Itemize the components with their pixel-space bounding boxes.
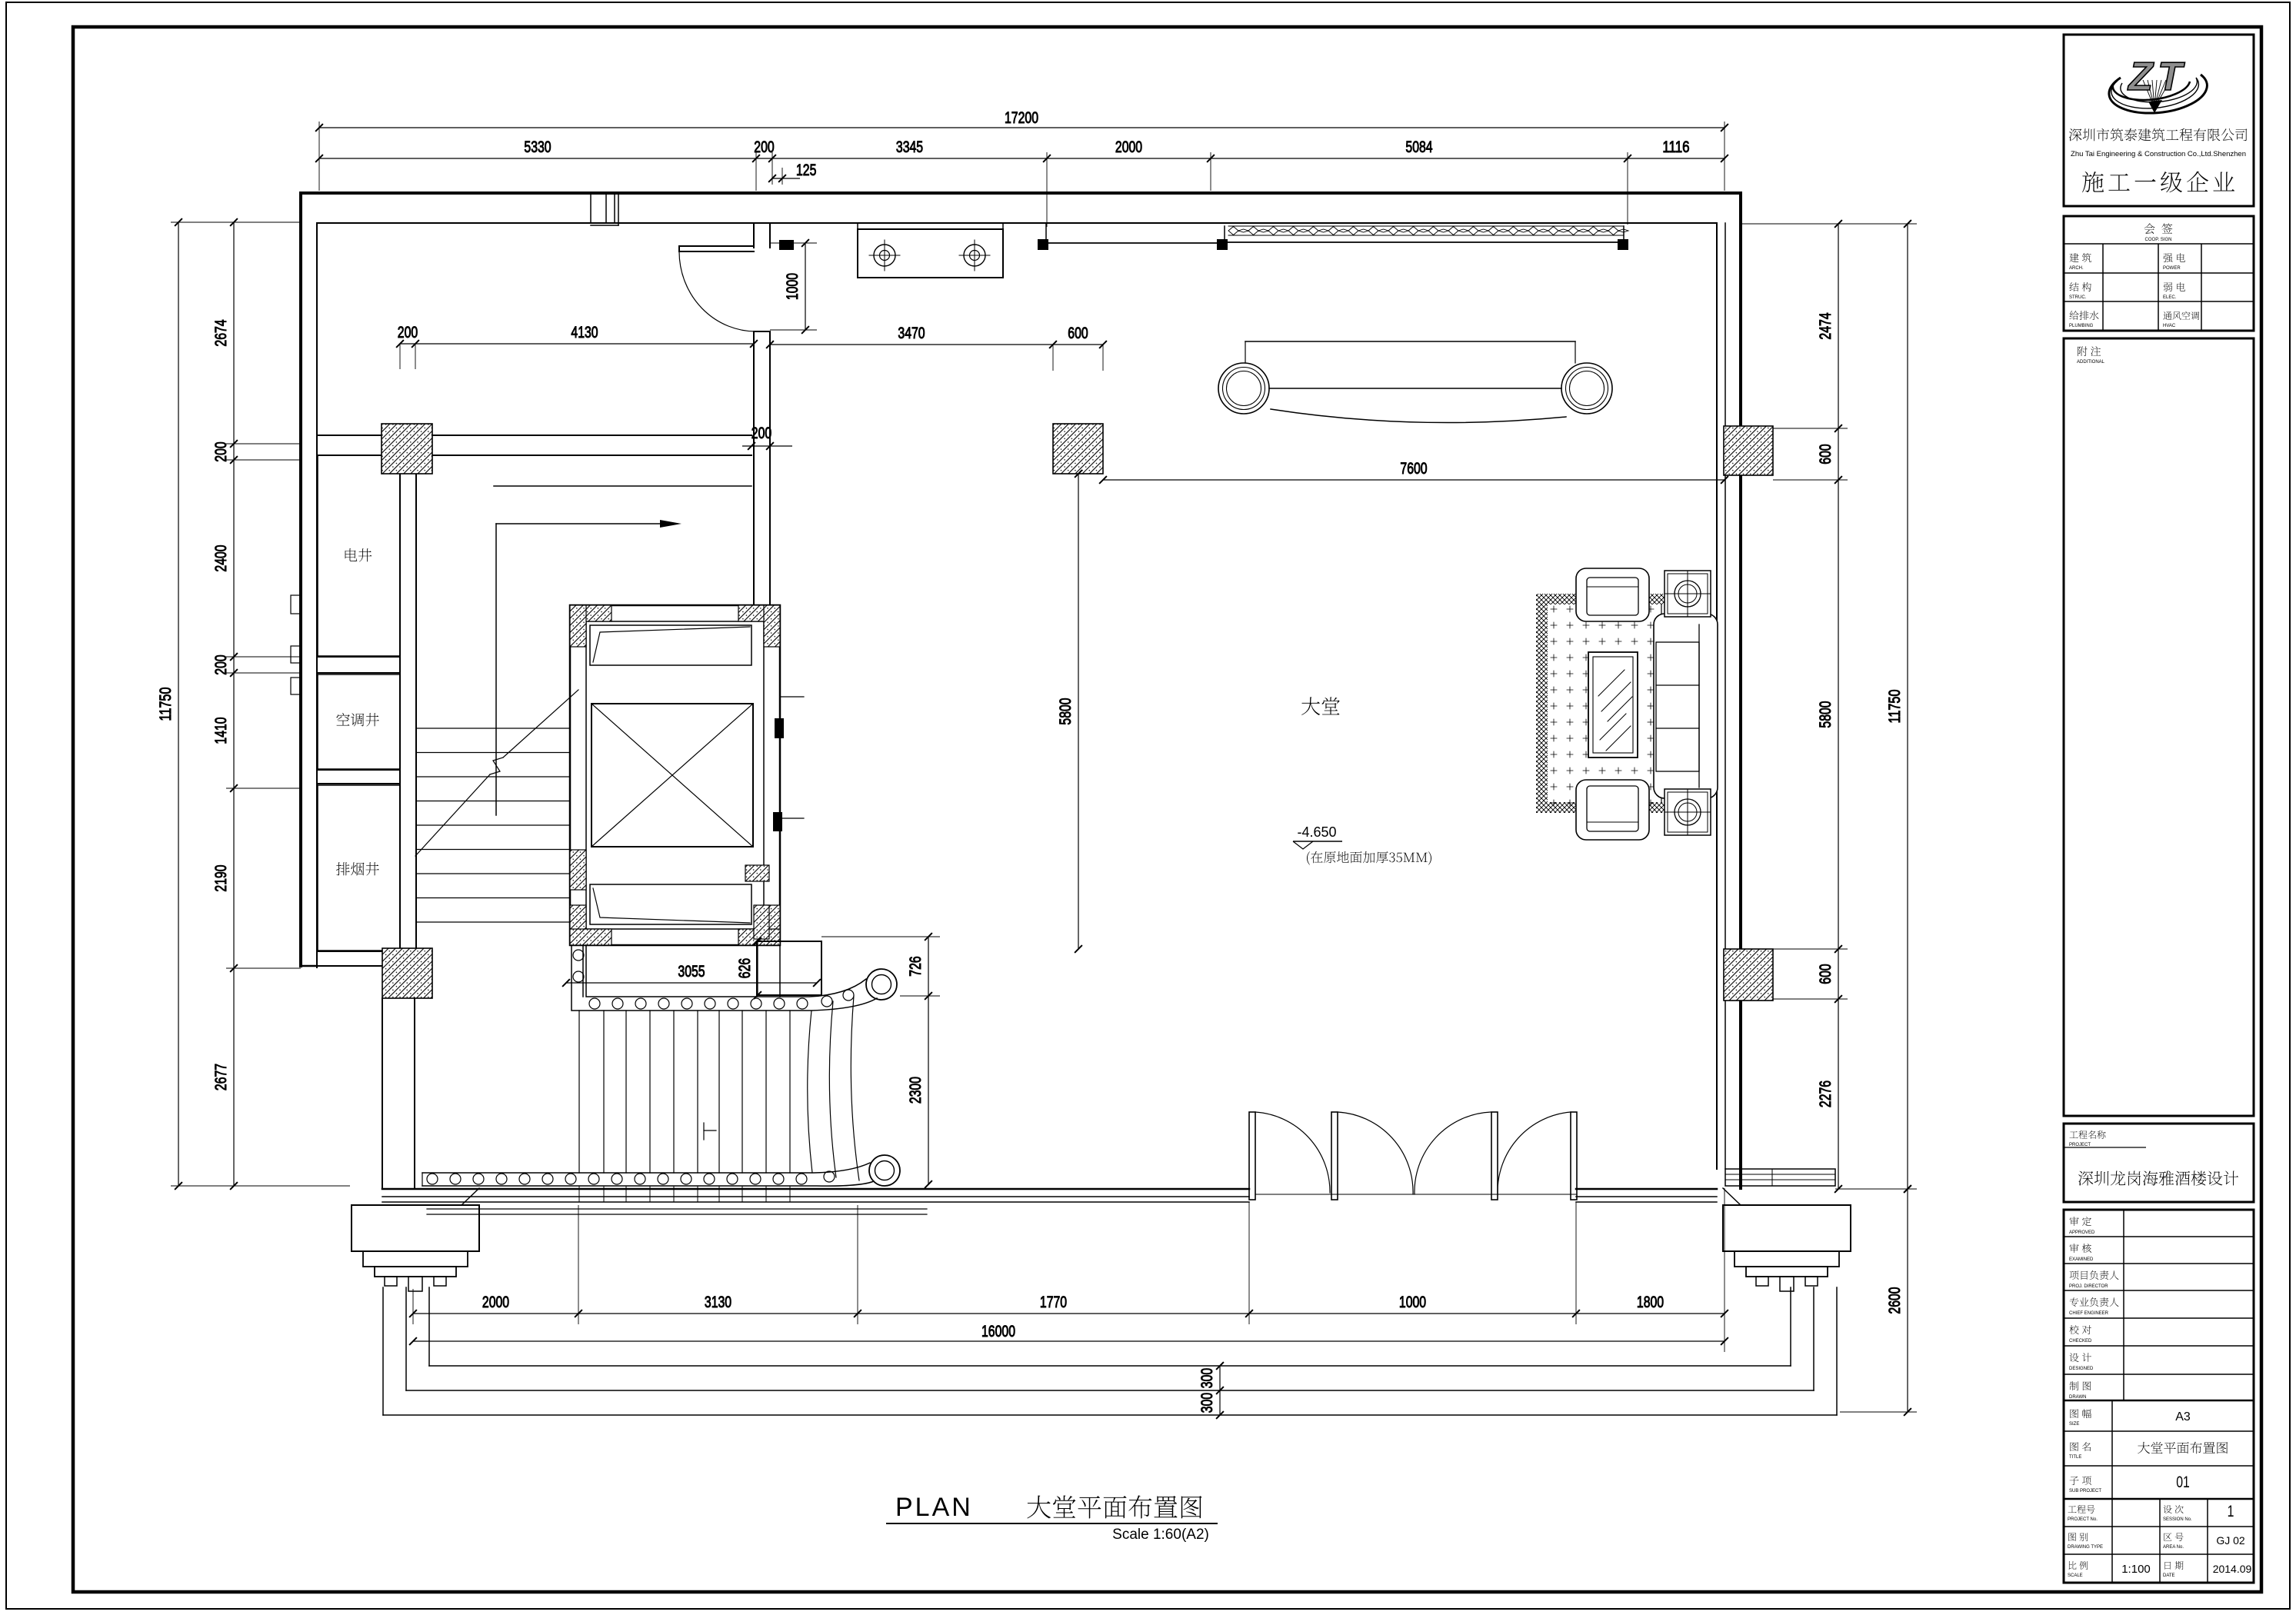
svg-text:3130: 3130	[705, 1294, 731, 1311]
svg-text:EXAMINED: EXAMINED	[2069, 1257, 2094, 1262]
svg-text:CHIEF ENGINEER: CHIEF ENGINEER	[2069, 1311, 2109, 1316]
svg-text:3470: 3470	[898, 325, 925, 342]
svg-text:T: T	[2158, 55, 2185, 99]
svg-text:1800: 1800	[1637, 1294, 1664, 1311]
svg-text:SIZE: SIZE	[2069, 1422, 2079, 1427]
svg-text:2400: 2400	[212, 544, 230, 571]
svg-text:TITLE: TITLE	[2069, 1455, 2081, 1460]
svg-text:SESSION No.: SESSION No.	[2163, 1517, 2192, 1522]
svg-text:AREA No.: AREA No.	[2163, 1545, 2184, 1550]
svg-text:DESIGNED: DESIGNED	[2069, 1367, 2094, 1371]
svg-text:A3: A3	[2175, 1410, 2191, 1424]
svg-text:5330: 5330	[524, 138, 551, 156]
svg-text:PROJECT No.: PROJECT No.	[2068, 1517, 2098, 1522]
svg-text:3055: 3055	[678, 963, 705, 981]
svg-text:600: 600	[1817, 444, 1834, 464]
svg-text:2014.09: 2014.09	[2213, 1563, 2252, 1575]
svg-text:200: 200	[754, 138, 774, 156]
svg-text:7600: 7600	[1400, 460, 1427, 478]
svg-text:COOP. SIGN: COOP. SIGN	[2145, 238, 2172, 242]
svg-text:CHECKED: CHECKED	[2069, 1339, 2092, 1344]
svg-text:626: 626	[736, 958, 754, 978]
svg-text:200: 200	[751, 425, 771, 442]
svg-text:2000: 2000	[1115, 138, 1142, 156]
svg-text:STRUC.: STRUC.	[2069, 295, 2087, 300]
svg-text:200: 200	[212, 654, 230, 674]
svg-text:ARCH.: ARCH.	[2069, 266, 2084, 271]
svg-text:Scale 1:60(A2): Scale 1:60(A2)	[1112, 1527, 1209, 1543]
svg-text:GJ 02: GJ 02	[2216, 1534, 2245, 1547]
svg-text:ELEC.: ELEC.	[2163, 295, 2177, 300]
svg-text:1:100: 1:100	[2121, 1563, 2151, 1576]
svg-text:1000: 1000	[1399, 1294, 1426, 1311]
svg-text:Z: Z	[2127, 55, 2154, 99]
svg-text:125: 125	[796, 161, 816, 179]
svg-text:2276: 2276	[1817, 1081, 1834, 1107]
svg-text:DRAWING TYPE: DRAWING TYPE	[2068, 1545, 2103, 1550]
svg-text:2000: 2000	[482, 1294, 509, 1311]
svg-text:POWER: POWER	[2163, 266, 2181, 271]
svg-text:726: 726	[907, 956, 925, 976]
svg-text:16000: 16000	[981, 1323, 1015, 1340]
svg-text:DATE: DATE	[2163, 1573, 2175, 1578]
svg-text:2600: 2600	[1886, 1287, 1904, 1314]
svg-text:600: 600	[1817, 964, 1834, 984]
svg-text:5800: 5800	[1057, 698, 1075, 724]
svg-text:-4.650: -4.650	[1297, 824, 1336, 840]
svg-text:600: 600	[1068, 325, 1088, 342]
svg-text:200: 200	[398, 324, 418, 341]
svg-text:200: 200	[212, 441, 230, 461]
svg-text:HVAC: HVAC	[2163, 324, 2176, 328]
svg-text:2300: 2300	[907, 1077, 925, 1104]
svg-text:01: 01	[2176, 1473, 2190, 1491]
svg-text:ADDITIONAL: ADDITIONAL	[2077, 360, 2105, 365]
svg-text:PLAN: PLAN	[895, 1493, 973, 1522]
svg-text:PROJ. DIRECTOR: PROJ. DIRECTOR	[2069, 1284, 2108, 1289]
svg-text:1770: 1770	[1040, 1294, 1067, 1311]
svg-text:2674: 2674	[212, 319, 230, 346]
svg-text:3345: 3345	[896, 138, 923, 156]
svg-text:SUB PROJECT: SUB PROJECT	[2069, 1489, 2101, 1493]
svg-text:300: 300	[1198, 1393, 1216, 1413]
svg-text:1000: 1000	[784, 273, 801, 300]
svg-text:1: 1	[2228, 1503, 2234, 1520]
svg-text:1116: 1116	[1662, 138, 1689, 156]
svg-text:11750: 11750	[1886, 690, 1904, 724]
svg-text:4130: 4130	[571, 324, 598, 341]
svg-text:DRAWN: DRAWN	[2069, 1395, 2086, 1400]
svg-text:17200: 17200	[1005, 109, 1038, 127]
svg-text:2677: 2677	[212, 1064, 230, 1091]
svg-text:PROJECT: PROJECT	[2069, 1143, 2091, 1147]
svg-text:2190: 2190	[212, 864, 230, 891]
svg-text:Zhu Tai Engineering & Construc: Zhu Tai Engineering & Construction Co.,L…	[2071, 150, 2246, 158]
svg-text:APPROVED: APPROVED	[2069, 1230, 2095, 1235]
svg-text:11750: 11750	[157, 688, 175, 721]
svg-text:5800: 5800	[1817, 701, 1834, 728]
svg-text:PLUMBING: PLUMBING	[2069, 324, 2094, 328]
svg-text:5084: 5084	[1405, 138, 1432, 156]
svg-text:300: 300	[1198, 1368, 1216, 1388]
svg-text:2474: 2474	[1817, 312, 1834, 339]
svg-text:SCALE: SCALE	[2068, 1573, 2083, 1578]
svg-text:1410: 1410	[212, 717, 230, 744]
